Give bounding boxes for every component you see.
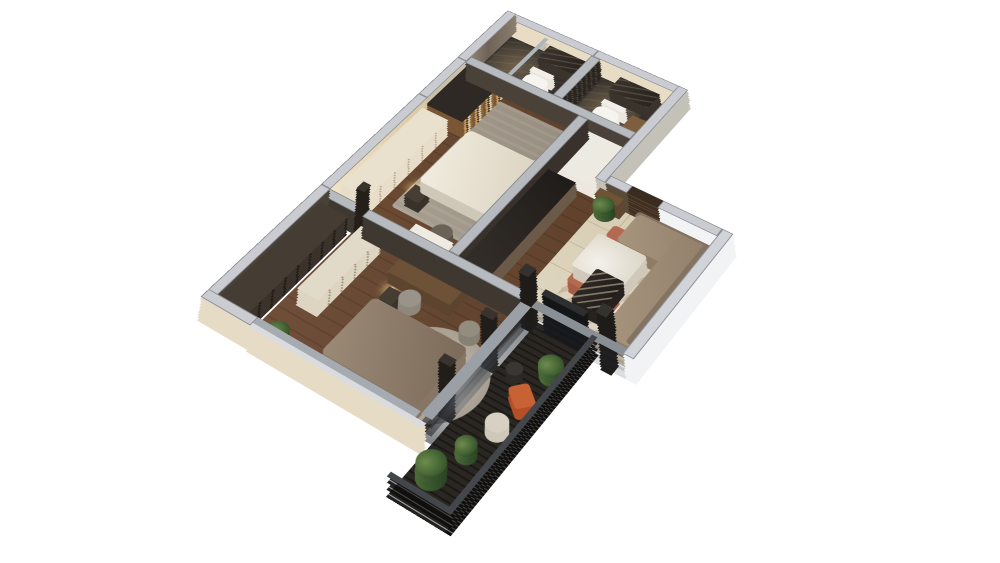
apartment-3d-floorplan-render bbox=[0, 0, 1000, 563]
perspective-viewport bbox=[0, 0, 1000, 563]
